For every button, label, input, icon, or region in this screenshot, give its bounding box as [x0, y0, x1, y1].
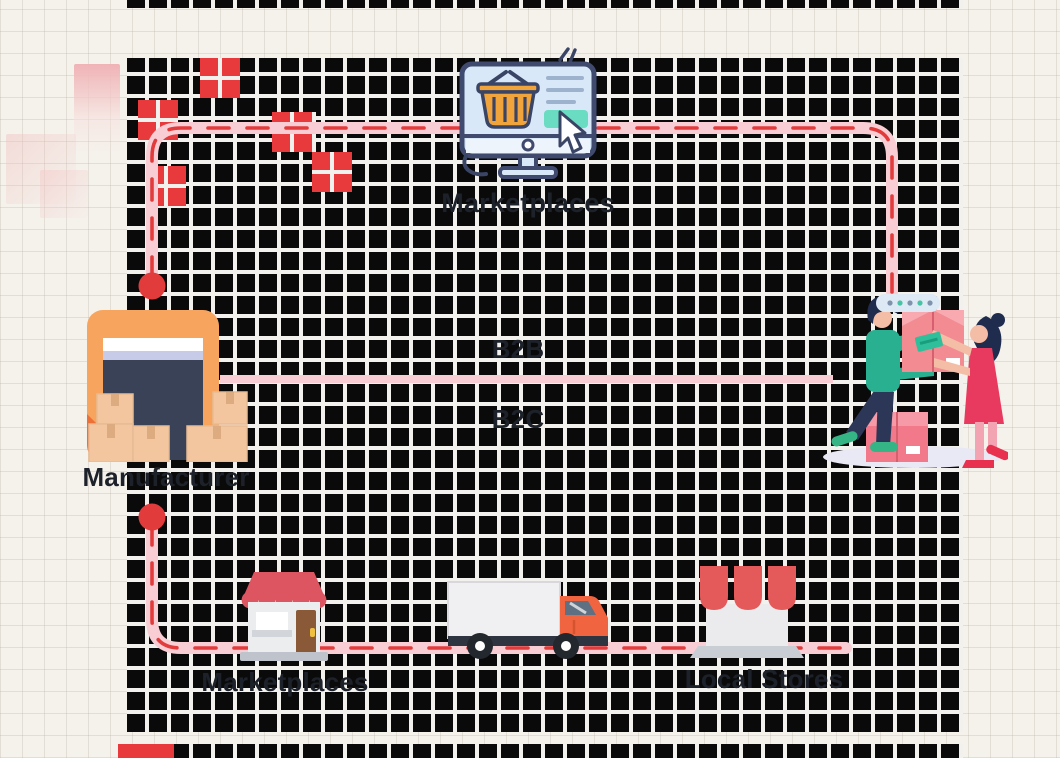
route-node-dot-top [139, 273, 166, 300]
label-b2b: B2B [492, 334, 545, 365]
storefront-icon [236, 570, 332, 664]
online-shopping-monitor-icon [456, 44, 600, 180]
route-node-dot-bottom [139, 504, 166, 531]
label-retail-marketplaces: Marketplaces [201, 667, 368, 698]
label-online-marketplaces: Marketplaces [441, 188, 615, 219]
delivery-truck-icon [446, 576, 614, 664]
buyer-seller-exchange-illustration [818, 282, 1008, 472]
label-manufacturer: Manufacturer [82, 462, 249, 493]
market-stall-icon [690, 558, 804, 662]
supply-chain-diagram: Marketplaces Manufacturer B2B B2C Market… [0, 0, 1060, 758]
warehouse-boxes-icon [85, 308, 249, 462]
label-b2c: B2C [492, 404, 545, 435]
label-local-stores: Local Stores [685, 664, 843, 695]
